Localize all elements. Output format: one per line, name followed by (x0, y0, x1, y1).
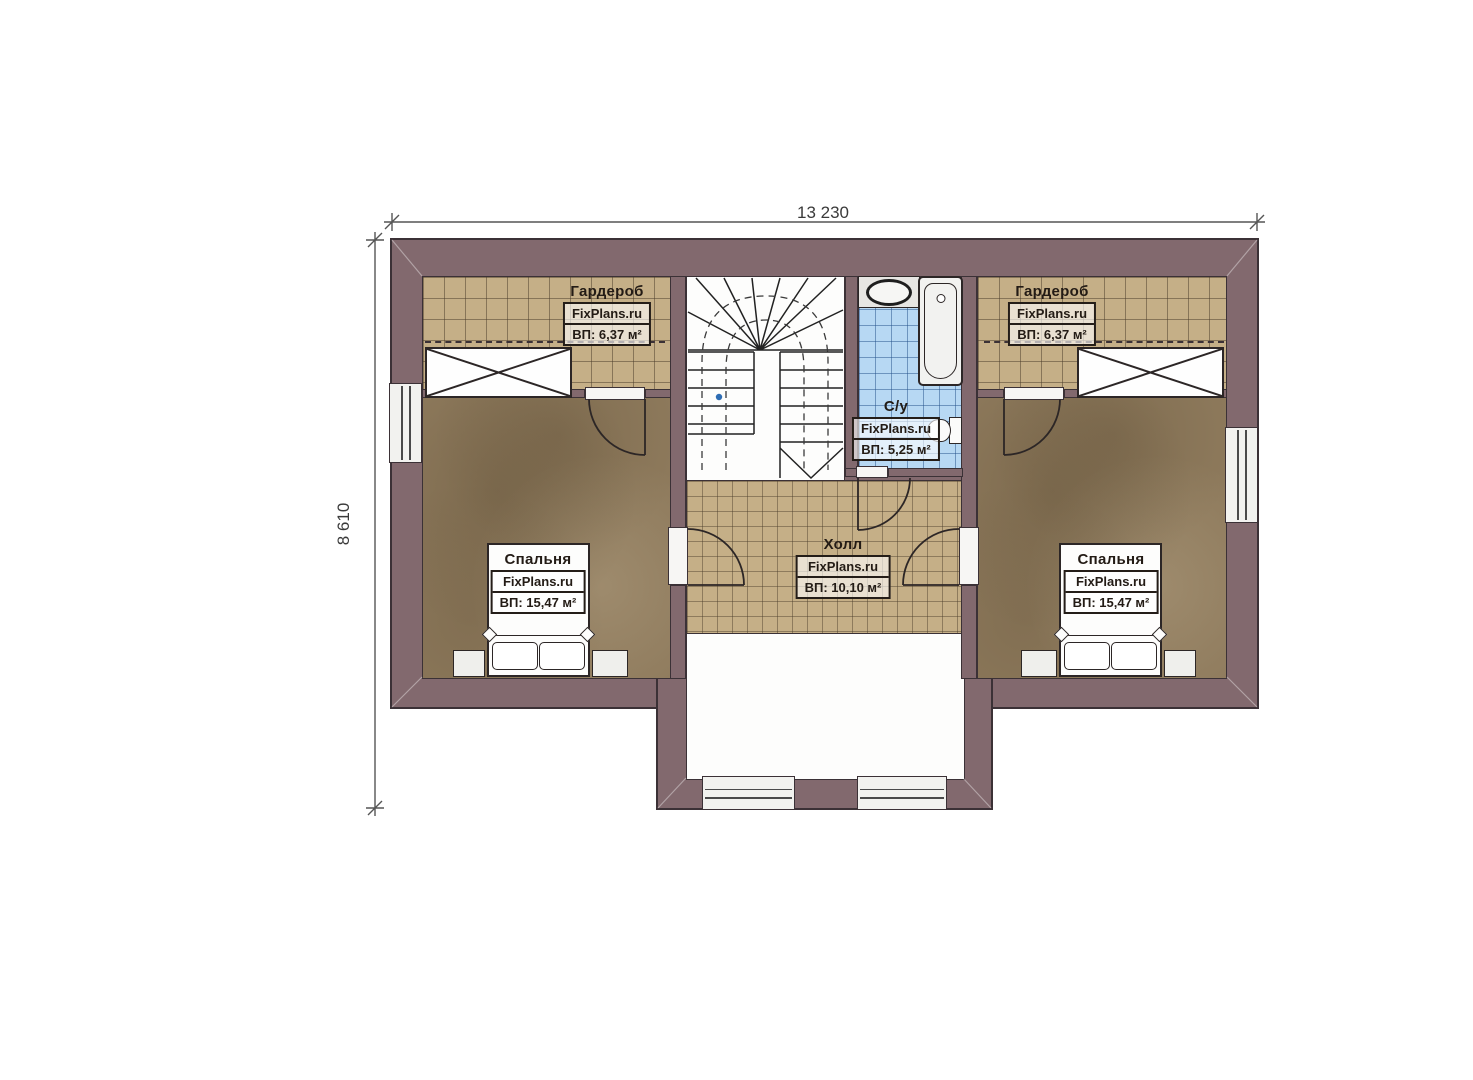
dimension-height-label: 8 610 (334, 503, 354, 546)
room-area: ВП: 6,37 м² (565, 325, 649, 344)
pillow (1111, 642, 1157, 670)
door-opening-wardrobe-left (585, 387, 645, 400)
wall-center-left-lower (670, 585, 686, 679)
room-info-box: FixPlans.ru ВП: 15,47 м² (491, 570, 586, 614)
door-opening-wardrobe-right (1004, 387, 1064, 400)
room-name: Холл (796, 536, 891, 553)
room-info-box: FixPlans.ru ВП: 15,47 м² (1064, 570, 1159, 614)
dimension-width-label: 13 230 (797, 203, 849, 223)
room-label-wardrobe-right: Гардероб FixPlans.ru ВП: 6,37 м² (1008, 283, 1096, 346)
window-left-wall (389, 383, 422, 463)
wall-divider-left-b (645, 389, 671, 398)
window-bay-right (857, 776, 947, 810)
room-info-box: FixPlans.ru ВП: 6,37 м² (563, 302, 651, 346)
window-bay-left (702, 776, 795, 810)
sink (866, 279, 912, 306)
wall-bath-bottom-b (888, 468, 963, 477)
room-area: ВП: 10,10 м² (798, 578, 889, 597)
wall-center-right-upper (961, 276, 977, 529)
room-name: Гардероб (563, 283, 651, 300)
void-floor (686, 633, 965, 780)
room-area: ВП: 6,37 м² (1010, 325, 1094, 344)
pillow (1064, 642, 1110, 670)
room-area: ВП: 15,47 м² (1066, 593, 1157, 612)
room-name: Гардероб (1008, 283, 1096, 300)
watermark-text: FixPlans.ru (565, 304, 649, 325)
wall-center-right-lower (961, 585, 977, 679)
stairwell-floor (686, 276, 845, 482)
door-opening-bedroom-right (959, 527, 979, 585)
pillow (492, 642, 538, 670)
cabinet-x-icon (427, 349, 570, 396)
room-name: Спальня (491, 551, 586, 568)
door-opening-bathroom (856, 466, 888, 478)
nightstand (453, 650, 485, 677)
room-label-bedroom-left: Спальня FixPlans.ru ВП: 15,47 м² (491, 551, 586, 614)
door-opening-bedroom-left (668, 527, 688, 585)
pillow (539, 642, 585, 670)
room-name: С/у (852, 398, 940, 415)
nightstand (1164, 650, 1196, 677)
window-right-wall (1225, 427, 1258, 523)
watermark-text: FixPlans.ru (1066, 572, 1157, 593)
room-label-hall: Холл FixPlans.ru ВП: 10,10 м² (796, 536, 891, 599)
watermark-text: FixPlans.ru (854, 419, 938, 440)
floor-plan-canvas: 13 230 8 610 Гардероб FixPlans.ru ВП: 6,… (0, 0, 1473, 1080)
room-name: Спальня (1064, 551, 1159, 568)
room-area: ВП: 15,47 м² (493, 593, 584, 612)
room-label-bedroom-right: Спальня FixPlans.ru ВП: 15,47 м² (1064, 551, 1159, 614)
bathtub-faucet (936, 294, 945, 303)
wall-divider-right-a (977, 389, 1004, 398)
room-area: ВП: 5,25 м² (854, 440, 938, 459)
cabinet-x-icon (1079, 349, 1222, 396)
bed-blanket-line (1061, 635, 1160, 636)
watermark-text: FixPlans.ru (493, 572, 584, 593)
wardrobe-left-cabinet (425, 347, 572, 398)
nightstand (1021, 650, 1057, 677)
watermark-text: FixPlans.ru (1010, 304, 1094, 325)
room-label-wardrobe-left: Гардероб FixPlans.ru ВП: 6,37 м² (563, 283, 651, 346)
watermark-text: FixPlans.ru (798, 557, 889, 578)
room-info-box: FixPlans.ru ВП: 6,37 м² (1008, 302, 1096, 346)
wardrobe-right-cabinet (1077, 347, 1224, 398)
wall-center-left-upper (670, 276, 686, 529)
room-info-box: FixPlans.ru ВП: 5,25 м² (852, 417, 940, 461)
bed-blanket-line (489, 635, 588, 636)
bathtub (918, 276, 963, 386)
room-label-bathroom: С/у FixPlans.ru ВП: 5,25 м² (852, 398, 940, 461)
nightstand (592, 650, 628, 677)
room-info-box: FixPlans.ru ВП: 10,10 м² (796, 555, 891, 599)
